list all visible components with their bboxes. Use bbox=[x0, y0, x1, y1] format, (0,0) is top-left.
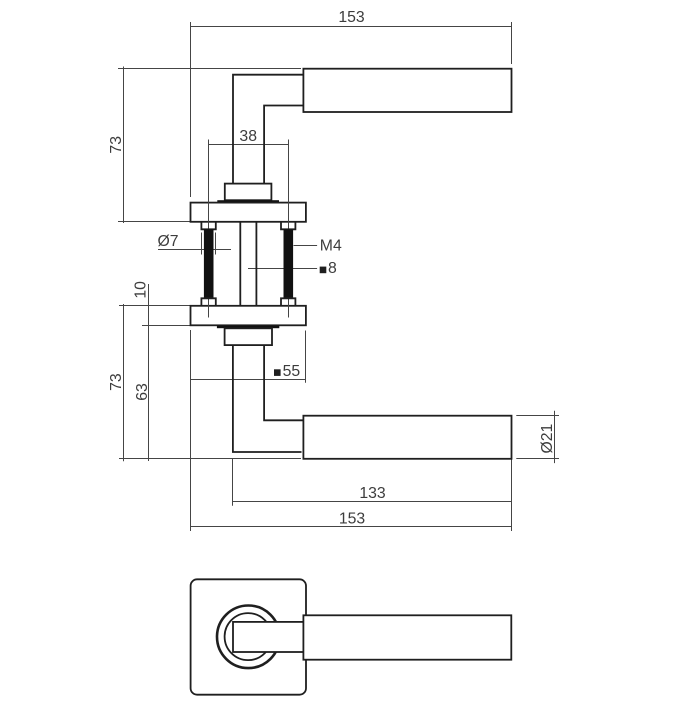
svg-text:63: 63 bbox=[134, 383, 151, 401]
svg-text:10: 10 bbox=[133, 281, 150, 299]
svg-text:153: 153 bbox=[338, 9, 365, 26]
svg-text:M4: M4 bbox=[320, 237, 342, 254]
svg-text:Ø7: Ø7 bbox=[158, 233, 179, 250]
svg-text:73: 73 bbox=[108, 136, 125, 154]
svg-text:8: 8 bbox=[328, 260, 337, 277]
svg-text:73: 73 bbox=[108, 373, 125, 391]
svg-text:55: 55 bbox=[283, 363, 301, 380]
svg-text:133: 133 bbox=[359, 485, 386, 502]
svg-text:38: 38 bbox=[239, 128, 257, 145]
svg-text:153: 153 bbox=[339, 510, 366, 527]
svg-text:Ø21: Ø21 bbox=[539, 423, 556, 453]
